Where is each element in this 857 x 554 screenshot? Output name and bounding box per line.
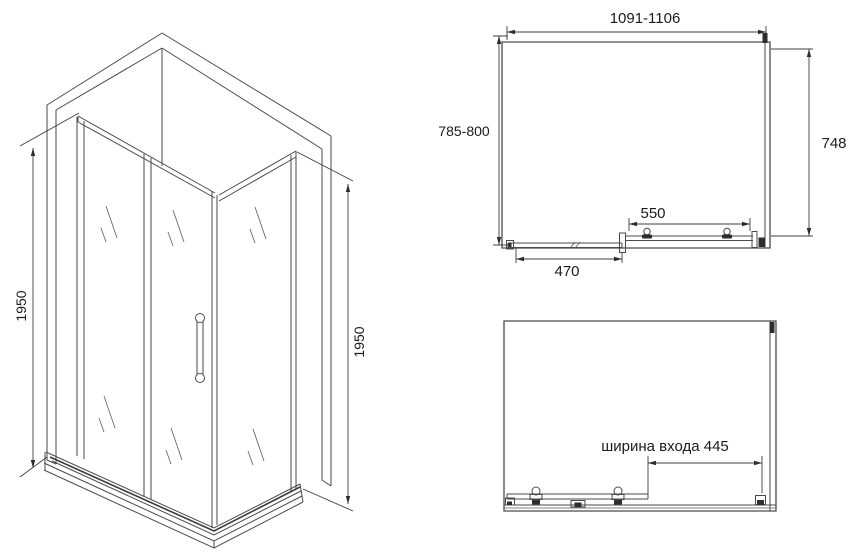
front-view: ширина входа 445 [504, 321, 776, 511]
fixed-panel-width-dimension: 470 [516, 248, 622, 280]
door-width-dimension: 550 [629, 205, 750, 231]
door-stop-profile [756, 496, 766, 506]
roller-icon [642, 228, 652, 238]
wall-profile-mark [763, 33, 768, 43]
roller-icon [722, 228, 732, 238]
height-dimension-left: 1950 [13, 113, 79, 477]
depth-dimension: 785-800 [438, 36, 508, 245]
base-tray [44, 452, 303, 548]
sliding-track [507, 228, 766, 252]
width-dimension: 1091-1106 [507, 10, 766, 40]
entrance-width-dimension: ширина входа 445 [601, 438, 762, 494]
front-frame [77, 116, 296, 528]
plan-view: 1091-1106 785-800 748 [438, 10, 846, 280]
technical-drawing-canvas: 1950 1950 1091-1106 785-800 [0, 0, 857, 554]
door-handle [196, 314, 205, 383]
height-dimension-right: 1950 [297, 152, 367, 511]
door-width-dimension-label: 550 [640, 205, 665, 222]
fixed-panel-bar [507, 241, 623, 250]
bottom-track [504, 487, 776, 508]
glass-depth-dimension: 748 [771, 49, 847, 236]
fixed-panel-width-dimension-label: 470 [554, 263, 579, 280]
perspective-view: 1950 1950 [13, 33, 367, 548]
roller-icon [530, 487, 542, 505]
drawing-svg: 1950 1950 1091-1106 785-800 [0, 0, 857, 554]
plan-outline [502, 42, 770, 248]
glass-depth-dimension-label: 748 [821, 135, 846, 152]
height-dimension-left-label: 1950 [13, 290, 29, 321]
wall-profile-mark [770, 322, 775, 333]
width-dimension-label: 1091-1106 [610, 10, 681, 27]
glass-reflection-marks [99, 206, 266, 465]
door-stop-profile [752, 232, 765, 248]
bottom-guide [571, 501, 585, 508]
back-walls [47, 33, 331, 486]
height-dimension-right-label: 1950 [351, 326, 367, 357]
depth-dimension-label: 785-800 [438, 123, 490, 139]
roller-icon [612, 487, 624, 505]
front-outline [504, 321, 776, 511]
entrance-width-dimension-label: ширина входа 445 [601, 438, 729, 455]
